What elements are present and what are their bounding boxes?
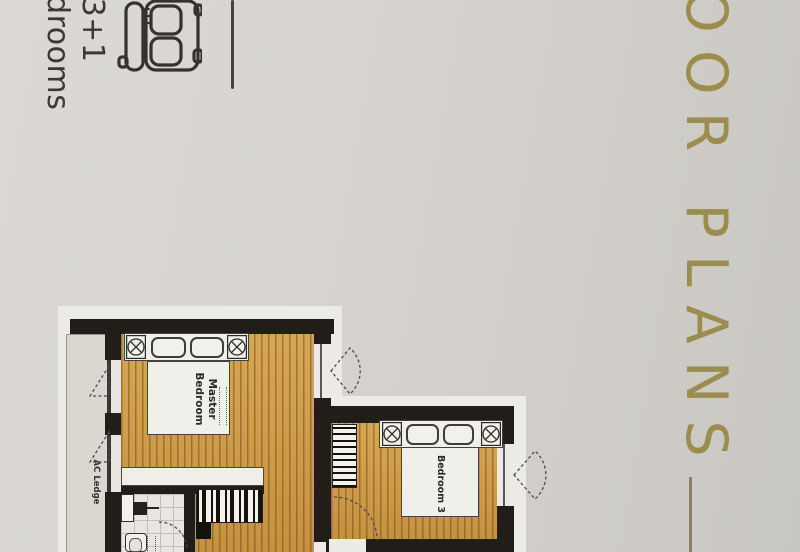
ac-ledge-label: AC Ledge bbox=[91, 456, 102, 508]
bed-icon bbox=[116, 0, 202, 84]
ac-ledge-area bbox=[66, 334, 110, 552]
bedroom3-door-opening bbox=[329, 539, 366, 552]
bedroom3-wardrobe bbox=[332, 424, 357, 488]
bathroom-basin bbox=[133, 502, 147, 515]
unit-type-word: Bedrooms bbox=[40, 0, 75, 105]
bedside-lamp-icon bbox=[481, 422, 501, 446]
header-divider-line bbox=[231, 0, 234, 89]
bedroom3-window bbox=[497, 444, 514, 506]
master-window bbox=[314, 344, 331, 398]
pillow bbox=[406, 424, 439, 445]
pillow bbox=[190, 337, 224, 358]
wall-stub bbox=[105, 334, 121, 360]
pillow bbox=[151, 337, 186, 358]
toilet-bowl bbox=[129, 538, 142, 552]
unit-type-heading: 3+1 Bedrooms bbox=[40, 0, 110, 105]
master-cabinet bbox=[121, 467, 264, 486]
master-bed-dimension-note bbox=[219, 387, 227, 425]
bathroom-label-note bbox=[147, 536, 156, 551]
bedside-lamp-icon bbox=[227, 335, 247, 359]
unit-type-count: 3+1 bbox=[75, 0, 110, 105]
bathroom-faucet bbox=[147, 507, 159, 509]
bedside-lamp-icon bbox=[126, 335, 146, 359]
bedroom3-label: Bedroom 3 bbox=[435, 454, 447, 514]
master-bedroom-label: Master Bedroom bbox=[193, 367, 218, 431]
wall-stub bbox=[105, 492, 121, 552]
pillow bbox=[443, 424, 474, 445]
page-title: OOR PLANS bbox=[672, 0, 739, 474]
master-wardrobe bbox=[196, 489, 263, 523]
bedside-lamp-icon bbox=[382, 422, 402, 446]
title-rule-line bbox=[689, 477, 692, 552]
wall-bathroom-right bbox=[184, 494, 195, 552]
wall-stub bbox=[105, 413, 121, 435]
wall-top bbox=[70, 319, 334, 334]
floor-plan-brochure-photo: 3+1 Bedrooms OOR PLANS bbox=[0, 0, 800, 552]
master-wardrobe-end-panel bbox=[196, 522, 211, 539]
